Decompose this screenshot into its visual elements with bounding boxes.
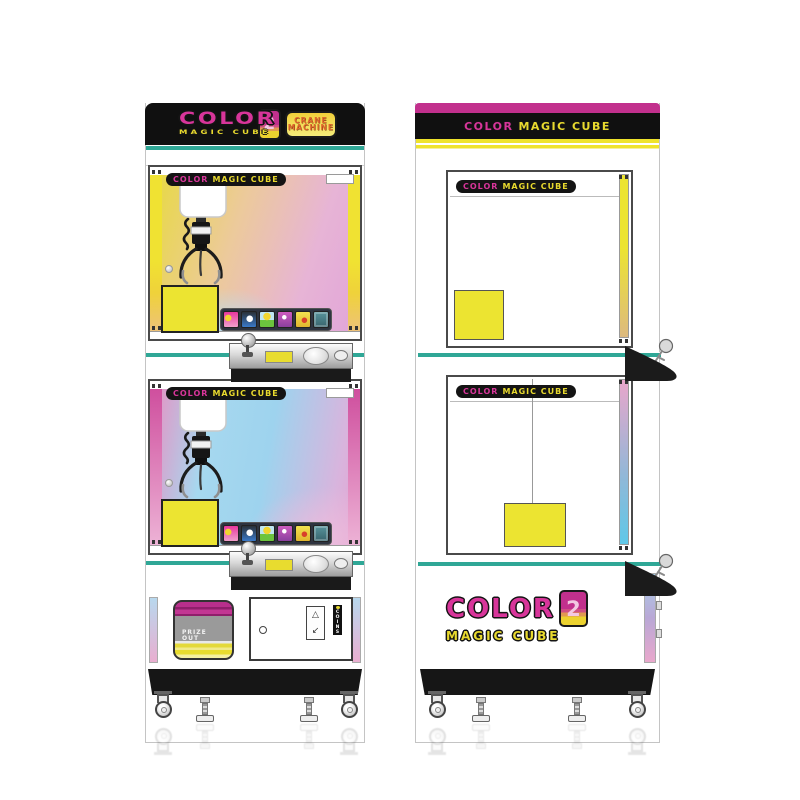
prize-chute-box <box>504 503 566 547</box>
caster-reflection <box>150 723 176 755</box>
window-banner: COLOR MAGIC CUBE <box>456 180 576 193</box>
joystick-base <box>242 352 253 357</box>
screw-icon <box>165 265 173 273</box>
leveling-foot-icon <box>568 697 586 723</box>
push-button <box>334 558 348 569</box>
marquee-yellow-stripes <box>416 139 659 151</box>
instruction-sticker-strip <box>220 308 332 331</box>
keyhole-icon <box>259 626 267 634</box>
caster-wheel-icon <box>336 691 362 723</box>
crane-machine-badge: CRANE MACHINE <box>285 111 337 138</box>
banner-color-word: COLOR <box>463 183 498 191</box>
bolt-pair <box>619 175 628 179</box>
prize-chute-box <box>161 499 219 547</box>
panel-underside <box>231 369 351 382</box>
sticker-yellow <box>295 311 311 328</box>
product-image-canvas: COLOR MAGIC CUBE 2 CRANE MACHINE <box>0 0 800 800</box>
sticker-blue <box>241 311 257 328</box>
coin-tag: COINS <box>333 605 342 635</box>
bolt-pair <box>152 170 161 174</box>
logo-row: COLOR 2 <box>446 590 588 627</box>
sticker-pink <box>223 311 239 328</box>
window-right-pillar <box>347 175 360 332</box>
gradient-edge-strip <box>352 597 361 663</box>
sticker-yellow <box>295 525 311 542</box>
bolt-pair <box>349 540 358 544</box>
side-window-lower: COLOR MAGIC CUBE <box>446 375 633 555</box>
sticker-blue <box>241 525 257 542</box>
prize-chute-box <box>161 285 219 333</box>
leveling-foot-icon <box>300 697 318 723</box>
coin-return-dial <box>303 555 329 573</box>
door-latch-plate <box>326 174 354 184</box>
gradient-edge-strip <box>149 597 158 663</box>
lower-cabinet: PRIZE OUT △ ↙ COINS <box>146 593 364 669</box>
sticker-teal <box>313 525 329 542</box>
bolt-pair <box>152 384 161 388</box>
sticker-pink <box>223 525 239 542</box>
leveling-foot-icon <box>472 697 490 723</box>
frame-seam-line <box>450 401 619 402</box>
door-latch-plate <box>326 388 354 398</box>
control-panel-upper <box>229 343 353 383</box>
caster-wheel-icon <box>624 691 650 723</box>
screw-icon <box>165 479 173 487</box>
logo-magic-word: MAGIC CUBE <box>518 120 610 133</box>
caution-sticker: △ ↙ <box>306 606 325 640</box>
control-panel-side-profile <box>622 552 682 598</box>
window-glass <box>162 389 348 546</box>
lever-arrow-icon: ↙ <box>312 627 320 636</box>
sticker-purple <box>277 525 293 542</box>
caster-reflection <box>336 723 362 755</box>
marquee-logo: COLOR MAGIC CUBE <box>179 112 276 136</box>
caster-wheel-icon <box>150 691 176 723</box>
logo-color-word: COLOR <box>464 120 513 133</box>
service-door: △ ↙ COINS <box>249 597 353 661</box>
side-window-upper: COLOR MAGIC CUBE <box>446 170 633 348</box>
window-glass <box>162 175 348 332</box>
logo-color-word: COLOR <box>446 597 555 621</box>
front-pillar-strip <box>619 174 629 338</box>
logo-number-badge: 2 <box>559 590 588 627</box>
warning-triangle-icon: △ <box>312 611 319 620</box>
sticker-green <box>259 311 275 328</box>
play-window-upper: COLOR MAGIC CUBE <box>148 165 362 341</box>
bolt-pair <box>349 326 358 330</box>
logo-magic-word: MAGIC CUBE <box>446 629 588 643</box>
sticker-green <box>259 525 275 542</box>
coin-tag-dot <box>336 606 340 609</box>
marquee-header: COLOR MAGIC CUBE <box>415 113 660 139</box>
bolt-pair <box>152 326 161 330</box>
logo-color-word: COLOR <box>179 112 276 127</box>
foot-reflection <box>196 723 214 749</box>
coin-slot <box>265 559 293 571</box>
prize-out-label: PRIZE OUT <box>182 630 207 642</box>
frame-seam-line <box>450 196 619 197</box>
hinge-tab <box>656 601 662 610</box>
caster-wheel-icon <box>424 691 450 723</box>
crane-machine-front-view: COLOR MAGIC CUBE 2 CRANE MACHINE <box>145 103 365 743</box>
bolt-pair <box>349 384 358 388</box>
coin-tag-label: COINS <box>335 610 340 635</box>
bolt-pair <box>619 546 628 550</box>
leveling-foot-icon <box>196 697 214 723</box>
marquee-header: COLOR MAGIC CUBE 2 CRANE MACHINE <box>145 103 365 145</box>
marquee-magenta-stripe <box>415 103 660 113</box>
crane-machine-side-view: COLOR MAGIC CUBE COLOR MAGIC CUBE COLOR <box>415 103 660 743</box>
foot-reflection <box>568 723 586 749</box>
banner-magic-word: MAGIC CUBE <box>212 176 278 184</box>
banner-magic-word: MAGIC CUBE <box>212 390 278 398</box>
play-window-lower: COLOR MAGIC CUBE <box>148 379 362 555</box>
banner-magic-word: MAGIC CUBE <box>502 183 568 191</box>
top-frame-band <box>146 150 364 166</box>
panel-underside <box>231 577 351 590</box>
front-pillar-strip <box>619 379 629 545</box>
sticker-purple <box>277 311 293 328</box>
push-button <box>334 350 348 361</box>
window-banner: COLOR MAGIC CUBE <box>456 385 576 398</box>
caster-reflection <box>424 723 450 755</box>
joystick-base <box>242 560 253 565</box>
bolt-pair <box>152 540 161 544</box>
hinge-tab <box>656 629 662 638</box>
banner-color-word: COLOR <box>463 388 498 396</box>
wheel-row <box>146 691 364 723</box>
floor-reflection <box>416 723 659 755</box>
wheel-row <box>416 691 659 723</box>
bolt-pair <box>349 170 358 174</box>
sticker-teal <box>313 311 329 328</box>
window-banner: COLOR MAGIC CUBE <box>166 173 286 186</box>
instruction-sticker-strip <box>220 522 332 545</box>
prize-chute-box <box>454 290 504 340</box>
banner-color-word: COLOR <box>173 390 208 398</box>
coin-return-dial <box>303 347 329 365</box>
window-banner: COLOR MAGIC CUBE <box>166 387 286 400</box>
out-word: OUT <box>182 636 207 642</box>
banner-magic-word: MAGIC CUBE <box>502 388 568 396</box>
floor-reflection <box>146 723 364 755</box>
claw-unit-icon <box>166 175 240 287</box>
machine-word: MACHINE <box>288 124 334 132</box>
window-right-pillar <box>347 389 360 546</box>
foot-reflection <box>472 723 490 749</box>
control-panel-side-profile <box>622 337 682 383</box>
control-panel-lower <box>229 551 353 591</box>
claw-unit-icon <box>166 389 240 501</box>
caster-reflection <box>624 723 650 755</box>
coin-slot <box>265 351 293 363</box>
prize-out-door: PRIZE OUT <box>173 600 234 660</box>
foot-reflection <box>300 723 318 749</box>
logo-magic-word: MAGIC CUBE <box>179 128 271 136</box>
side-cabinet-logo: COLOR 2 MAGIC CUBE <box>446 590 588 643</box>
banner-color-word: COLOR <box>173 176 208 184</box>
